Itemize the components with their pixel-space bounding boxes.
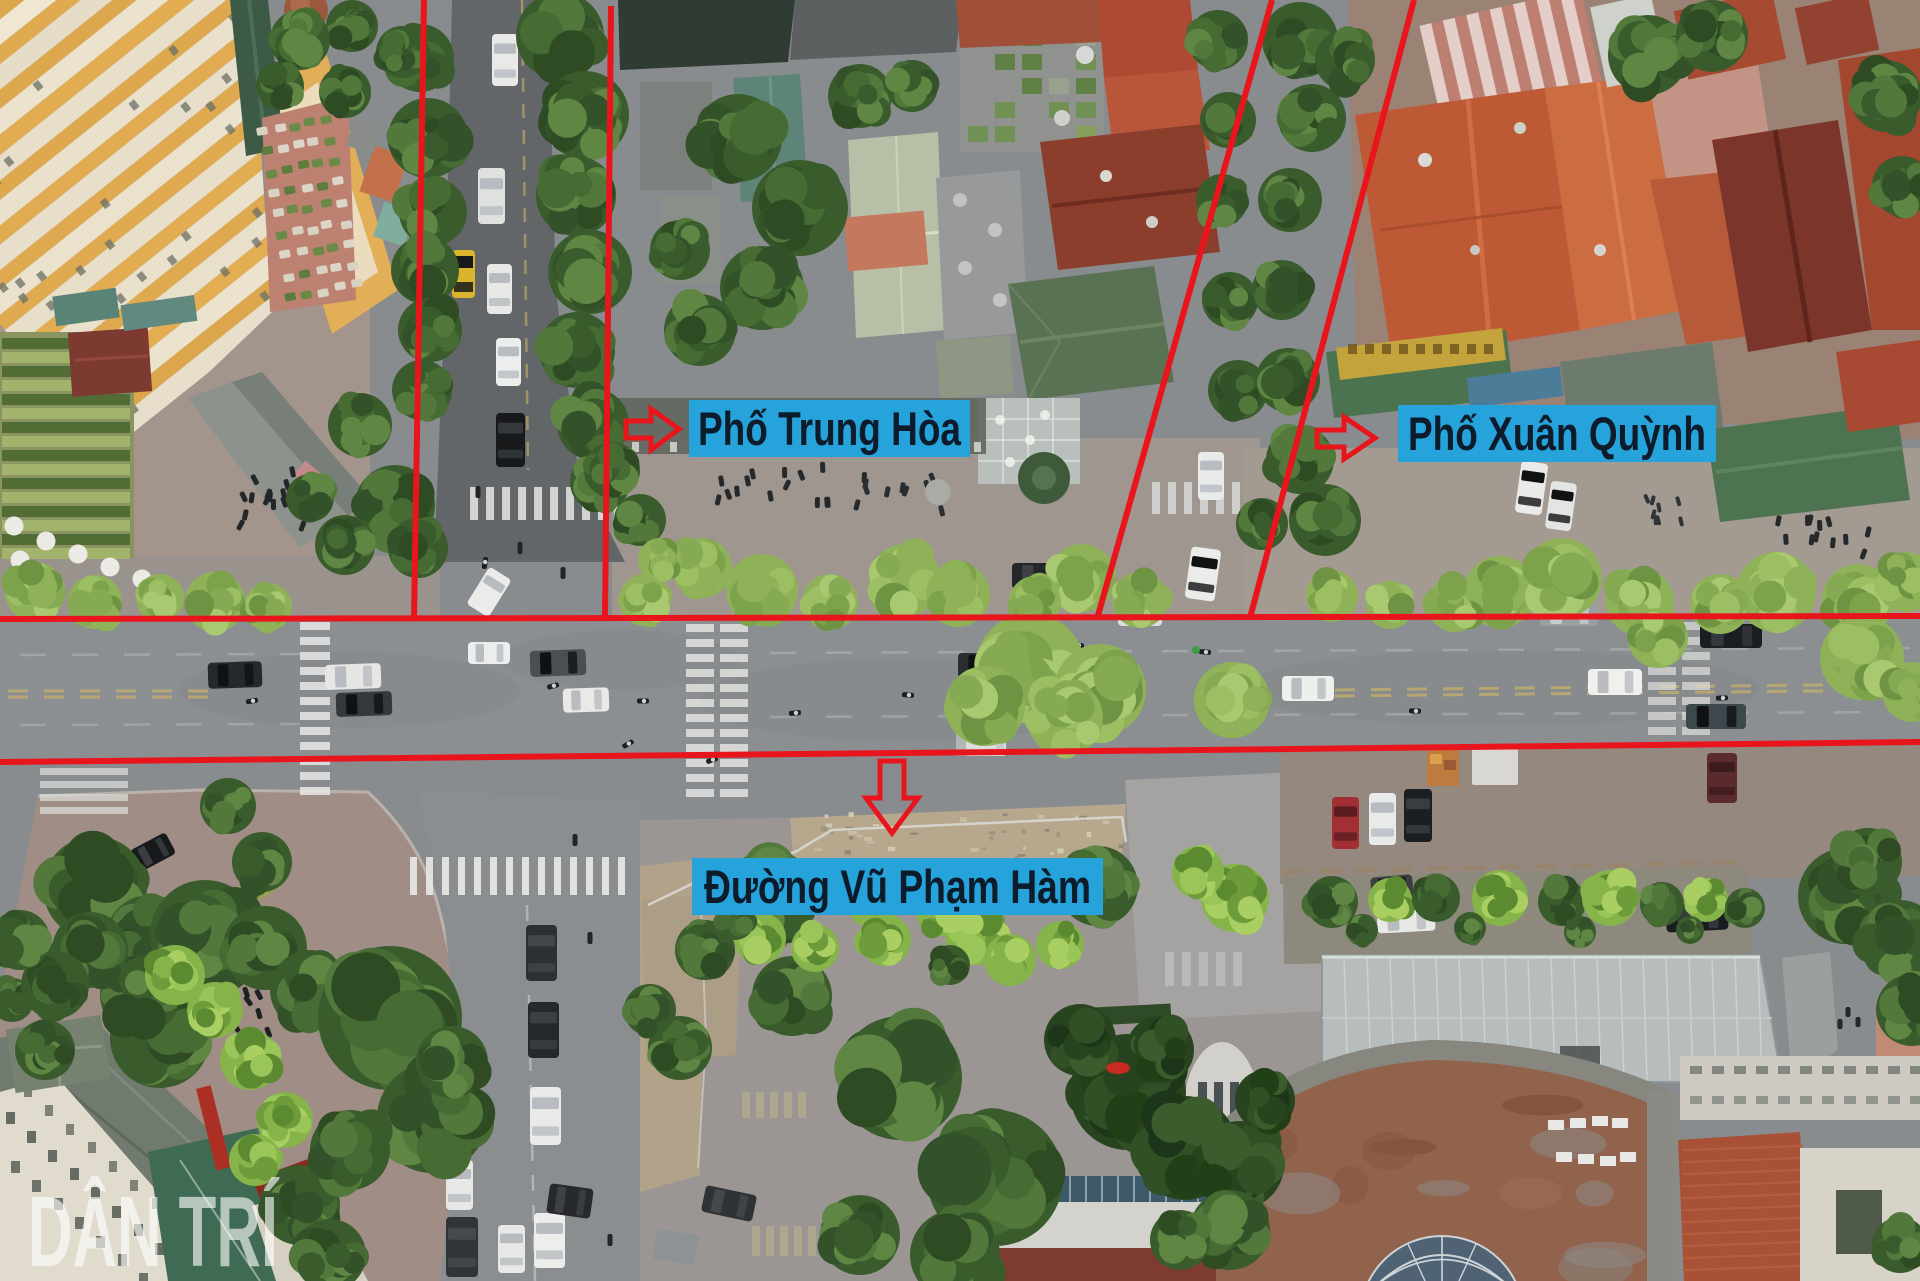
svg-text:Phố Trung Hòa: Phố Trung Hòa (698, 402, 962, 455)
svg-text:Phố Xuân Quỳnh: Phố Xuân Quỳnh (1408, 407, 1706, 460)
svg-text:DÂN TRÍ: DÂN TRÍ (28, 1175, 279, 1281)
svg-text:Đường Vũ Phạm Hàm: Đường Vũ Phạm Hàm (704, 860, 1091, 913)
